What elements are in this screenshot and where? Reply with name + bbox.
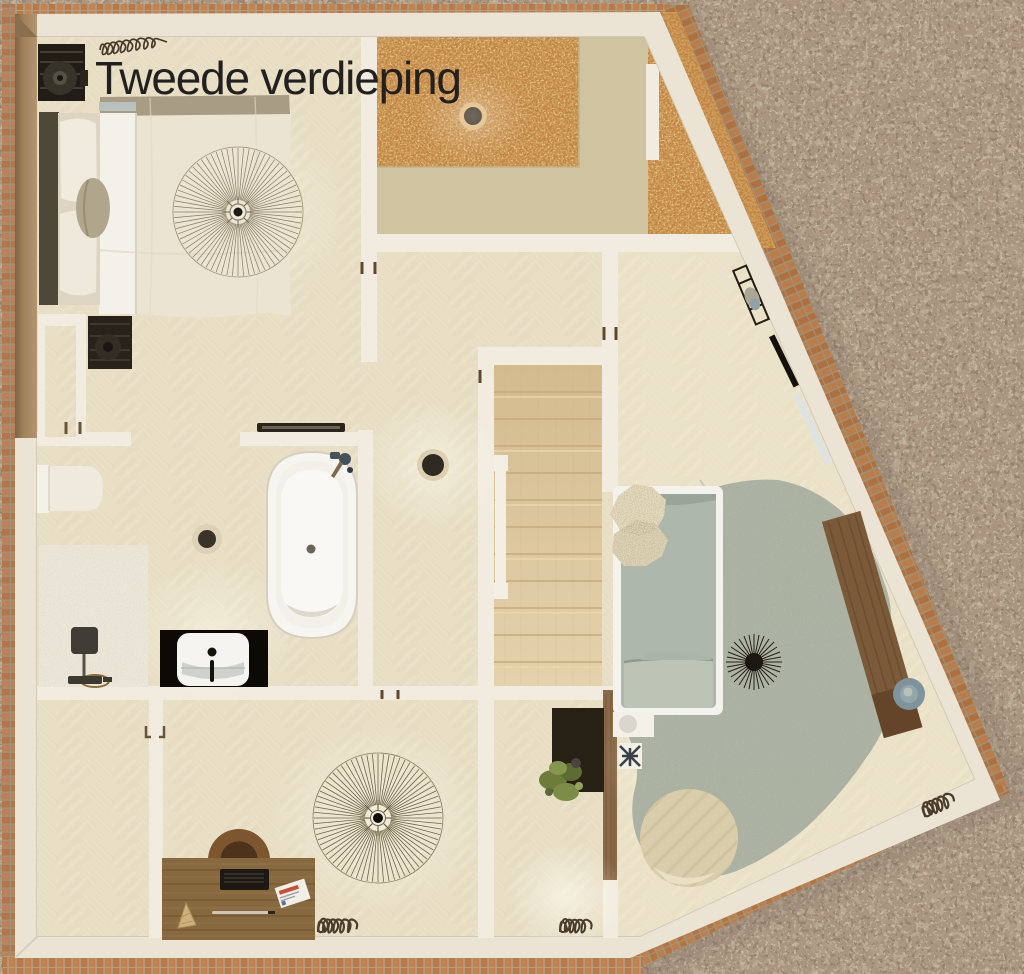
svg-text:Tweede verdieping: Tweede verdieping (95, 52, 461, 104)
